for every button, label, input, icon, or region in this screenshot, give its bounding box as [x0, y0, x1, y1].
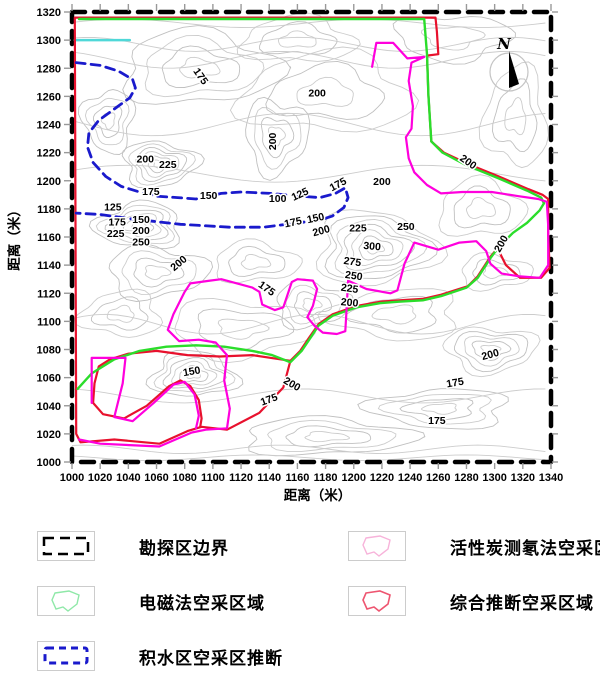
y-tick-label: 1240	[37, 120, 61, 132]
contour-map-figure: 1752002002002251751501001251751251751502…	[0, 0, 600, 677]
contour-value-label: 200	[340, 296, 359, 309]
contour-value-label: 200	[168, 253, 189, 274]
radon-goaf-swatch	[348, 531, 406, 561]
contour-value-label: 125	[290, 185, 311, 203]
contour-value-label: 250	[397, 221, 415, 233]
legend-item-exploration-border: 勘探区边界	[37, 531, 229, 561]
x-tick-label: 1300	[482, 472, 506, 484]
exploration-border-swatch	[37, 531, 95, 561]
contour-value-label: 200	[281, 375, 302, 394]
contour-value-label: 200	[132, 225, 150, 237]
legend-item-water-goaf-inference: 积水区空采区推断	[37, 641, 283, 671]
contour-value-label: 175	[190, 66, 210, 87]
contour-value-label: 125	[104, 201, 122, 213]
contour-value-label: 100	[269, 193, 287, 205]
legend-item-electromagnetic-goaf: 电磁法空采区域	[37, 586, 265, 616]
y-tick-label: 1180	[37, 204, 61, 216]
contour-value-label: 175	[428, 415, 446, 427]
y-axis-title: 距离（米）	[6, 203, 22, 271]
x-tick-label: 1320	[511, 472, 535, 484]
x-tick-label: 1000	[60, 472, 84, 484]
electromagnetic-goaf-swatch	[37, 586, 95, 616]
x-tick-label: 1100	[201, 472, 225, 484]
contour-value-label: 175	[445, 376, 464, 391]
x-tick-label: 1160	[285, 472, 309, 484]
y-tick-label: 1140	[37, 260, 61, 272]
x-tick-label: 1020	[88, 472, 112, 484]
legend-label: 勘探区边界	[139, 534, 229, 559]
x-tick-label: 1040	[116, 472, 140, 484]
y-tick-label: 1160	[37, 232, 61, 244]
y-tick-label: 1080	[37, 345, 61, 357]
x-tick-label: 1140	[257, 472, 281, 484]
contour-value-label: 300	[363, 240, 382, 253]
y-tick-label: 1220	[37, 148, 61, 160]
contour-value-label: 200	[480, 347, 500, 363]
comprehensive-goaf-swatch	[348, 586, 406, 616]
contour-value-label: 225	[349, 222, 367, 234]
contour-value-label: 225	[159, 159, 177, 171]
x-tick-label: 1280	[454, 472, 478, 484]
y-tick-label: 1120	[37, 288, 61, 300]
y-tick-label: 1000	[37, 457, 61, 469]
x-tick-label: 1080	[172, 472, 196, 484]
x-tick-label: 1260	[426, 472, 450, 484]
x-tick-label: 1180	[314, 472, 338, 484]
contour-value-label: 200	[136, 153, 154, 165]
map-canvas: 1752002002002251751501001251751251751502…	[0, 0, 600, 512]
contour-value-label: 200	[311, 223, 331, 239]
y-tick-label: 1260	[37, 91, 61, 103]
y-tick-label: 1060	[37, 373, 61, 385]
contour-value-label: 200	[267, 132, 279, 150]
y-tick-label: 1100	[37, 316, 61, 328]
x-axis-title: 距离（米）	[284, 487, 352, 503]
contour-value-label: 275	[343, 255, 362, 269]
x-tick-label: 1060	[144, 472, 168, 484]
contour-value-label: 175	[108, 217, 126, 229]
comprehensive-inference-goaf	[93, 351, 290, 427]
x-tick-label: 1200	[342, 472, 366, 484]
contour-value-label: 175	[256, 279, 277, 299]
x-tick-label: 1220	[370, 472, 394, 484]
water-goaf-inference-swatch	[37, 641, 95, 671]
contour-value-label: 200	[373, 176, 391, 188]
contour-value-label: 150	[200, 190, 218, 202]
contour-value-label: 225	[340, 282, 359, 296]
legend-label: 电磁法空采区域	[139, 589, 265, 614]
legend-label: 积水区空采区推断	[139, 644, 283, 669]
contour-value-label: 200	[308, 87, 326, 99]
contour-value-label: 150	[182, 364, 201, 379]
x-tick-label: 1120	[229, 472, 253, 484]
legend-item-comprehensive-goaf: 综合推断空采区域	[348, 586, 594, 616]
contour-value-label: 250	[344, 269, 363, 283]
contour-value-label: 250	[132, 236, 150, 248]
contour-value-label: 175	[283, 215, 303, 230]
y-tick-label: 1040	[37, 401, 61, 413]
legend-label: 活性炭测氡法空采区域	[450, 534, 600, 559]
y-tick-label: 1300	[37, 35, 61, 47]
legend-label: 综合推断空采区域	[450, 589, 594, 614]
contour-value-label: 225	[107, 228, 125, 240]
y-tick-label: 1020	[37, 429, 61, 441]
y-tick-label: 1200	[37, 176, 61, 188]
y-tick-label: 1320	[37, 7, 61, 19]
y-tick-label: 1280	[37, 63, 61, 75]
x-tick-label: 1340	[539, 472, 563, 484]
legend-item-radon-goaf: 活性炭测氡法空采区域	[348, 531, 600, 561]
contour-value-label: 175	[142, 186, 160, 198]
north-label: N	[496, 35, 512, 53]
contour-value-label: 150	[132, 214, 150, 226]
x-tick-label: 1240	[398, 472, 422, 484]
